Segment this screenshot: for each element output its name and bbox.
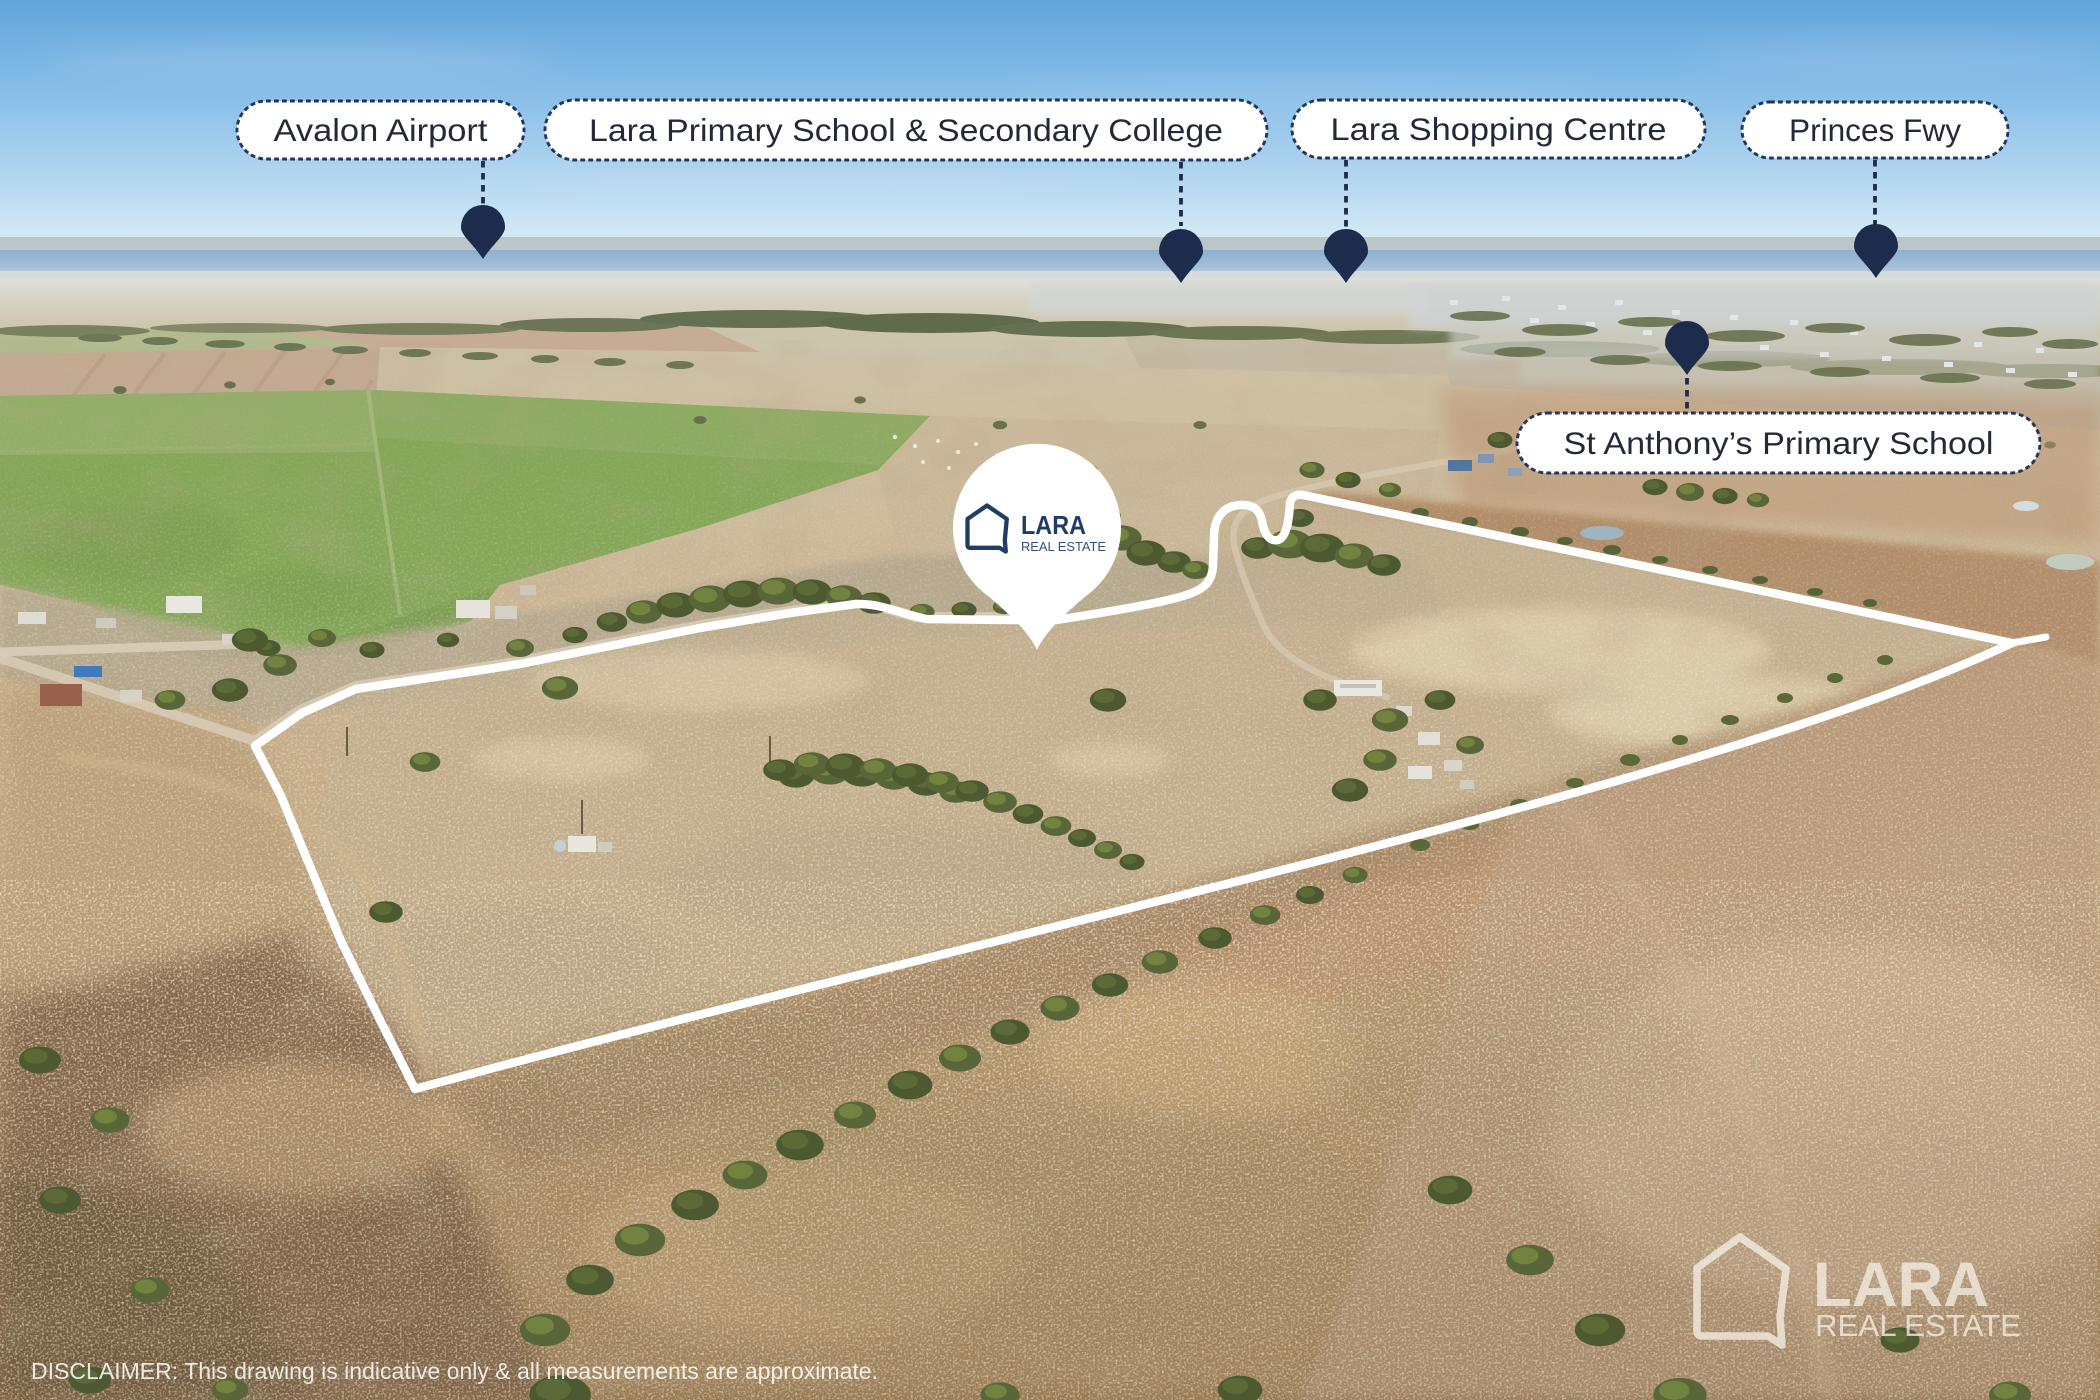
svg-text:Lara Shopping Centre: Lara Shopping Centre	[1331, 111, 1667, 147]
svg-text:Princes Fwy: Princes Fwy	[1789, 112, 1961, 148]
svg-text:Avalon Airport: Avalon Airport	[274, 112, 488, 148]
svg-text:LARA: LARA	[1021, 510, 1086, 540]
svg-text:REAL ESTATE: REAL ESTATE	[1815, 1308, 2021, 1343]
svg-text:Lara Primary School & Secondar: Lara Primary School & Secondary College	[589, 112, 1223, 148]
svg-text:DISCLAIMER: This drawing is in: DISCLAIMER: This drawing is indicative o…	[31, 1358, 878, 1384]
svg-text:St Anthony’s Primary School: St Anthony’s Primary School	[1564, 425, 1994, 461]
svg-text:REAL ESTATE: REAL ESTATE	[1021, 539, 1106, 554]
